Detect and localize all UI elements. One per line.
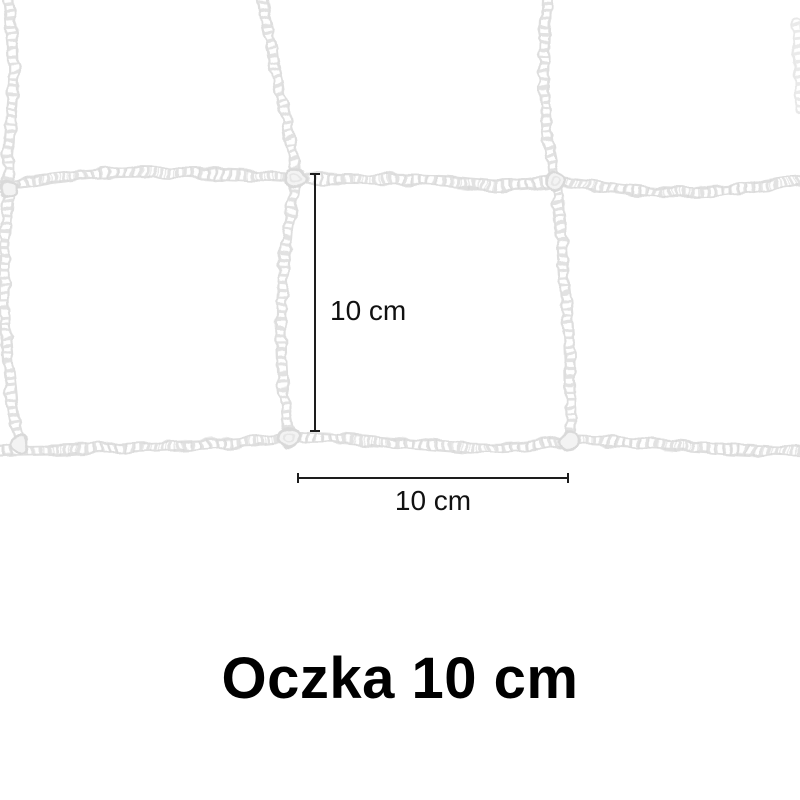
- net-knot: [279, 428, 299, 448]
- product-image: 10 cm 10 cm Oczka 10 cm: [0, 0, 800, 800]
- caption-title: Oczka 10 cm: [0, 645, 800, 712]
- horizontal-dimension-label: 10 cm: [298, 485, 568, 517]
- vertical-dimension-line: [310, 174, 320, 431]
- net-knot: [561, 431, 579, 449]
- net-graphic: [0, 0, 800, 453]
- net-strand-horizontal-top: [0, 172, 800, 192]
- net-strand-vertical-far-right: [796, 22, 800, 108]
- net-strand-vertical-left: [4, 0, 21, 445]
- net-strand-vertical-right: [544, 0, 571, 441]
- net-knot: [11, 435, 29, 453]
- net-knot: [547, 172, 565, 190]
- net-strand-vertical-middle: [262, 0, 296, 438]
- net-knot: [0, 180, 18, 198]
- net-knot: [285, 168, 305, 188]
- vertical-dimension-label: 10 cm: [330, 295, 406, 327]
- net-strand-horizontal-bottom: [0, 437, 800, 452]
- horizontal-dimension-line: [298, 473, 568, 483]
